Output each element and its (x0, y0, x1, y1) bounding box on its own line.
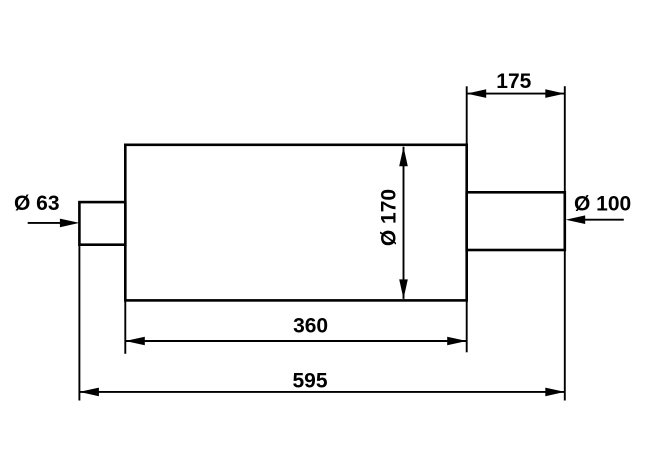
svg-text:595: 595 (292, 370, 327, 393)
svg-text:360: 360 (293, 314, 328, 337)
svg-text:Ø 63: Ø 63 (14, 192, 60, 215)
svg-text:Ø 100: Ø 100 (574, 193, 631, 216)
svg-text:Ø 170: Ø 170 (378, 189, 401, 246)
svg-text:175: 175 (496, 70, 531, 93)
